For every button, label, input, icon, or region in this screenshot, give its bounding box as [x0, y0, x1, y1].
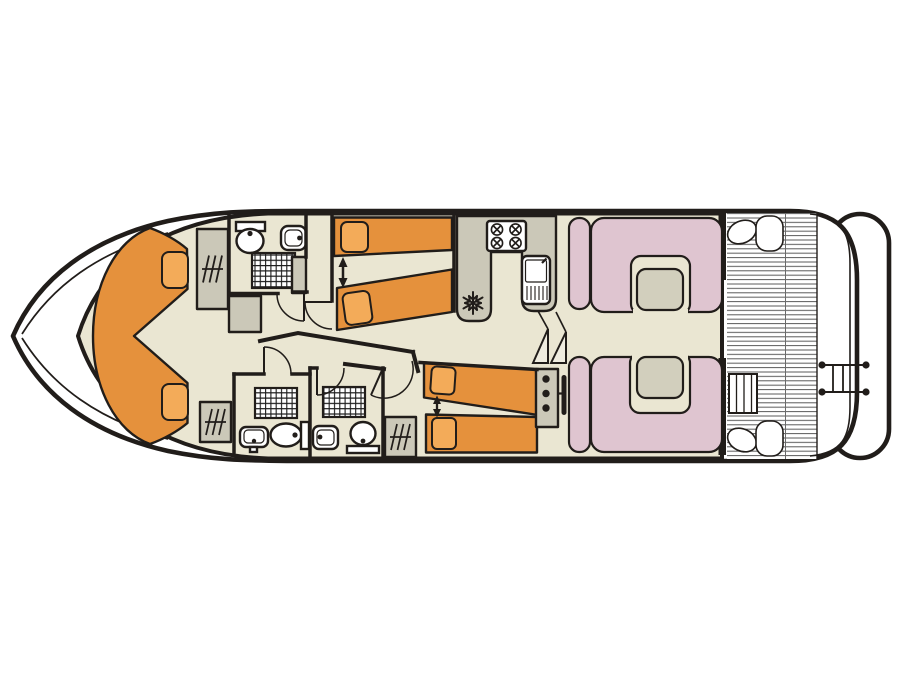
pillow: [432, 418, 456, 449]
tap: [297, 236, 302, 241]
toilet-base: [347, 446, 379, 453]
gauge: [542, 375, 549, 382]
pillow: [162, 252, 188, 288]
tap: [252, 439, 256, 443]
bathroom-cabinet: [292, 257, 306, 293]
gauge: [542, 390, 549, 397]
basin-pedestal: [250, 447, 257, 452]
toilet-flush: [361, 439, 366, 444]
toilet-flush: [247, 231, 252, 236]
tap: [318, 435, 323, 440]
toilet-cistern: [301, 422, 309, 449]
boat-floor-plan: [0, 0, 900, 675]
side-seat: [569, 357, 590, 452]
dinette-table: [637, 269, 683, 310]
pillow: [342, 290, 373, 325]
shower-icon: [252, 253, 295, 288]
sink-icon: [522, 256, 550, 304]
corridor-locker: [229, 296, 261, 332]
floor-plan-canvas: [0, 0, 900, 675]
gauge: [542, 404, 549, 411]
shower-icon: [255, 388, 297, 418]
pillow: [162, 384, 188, 420]
dinette-table: [637, 357, 683, 398]
pillow: [341, 222, 368, 252]
toilet-flush: [292, 432, 297, 437]
steering-wheel-icon: [562, 375, 567, 415]
side-seat: [569, 218, 590, 309]
hob-icon: [487, 221, 526, 251]
wardrobe: [385, 417, 416, 457]
pillow: [430, 366, 456, 395]
boarding-steps: [729, 374, 757, 413]
wardrobe: [197, 229, 228, 309]
wardrobe: [200, 402, 231, 442]
